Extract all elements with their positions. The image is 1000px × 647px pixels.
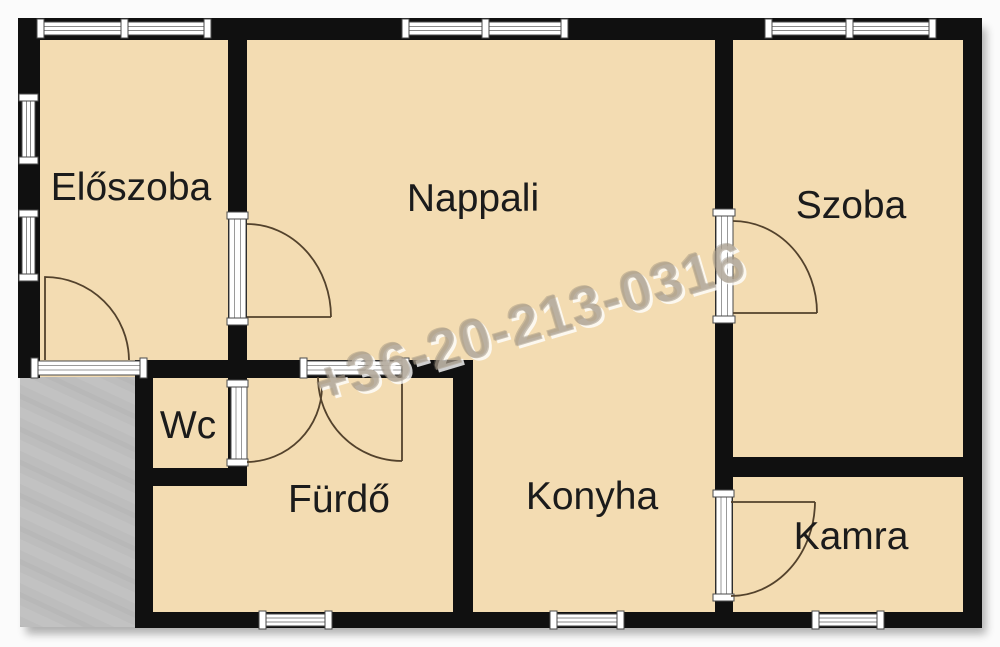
door-kamra	[713, 490, 734, 601]
door-eloszoba-nappali	[227, 212, 248, 325]
door-entrance	[31, 358, 147, 378]
label-szoba: Szoba	[796, 184, 907, 227]
floorplan-svg: Előszoba Nappali Szoba Wc Fürdő Konyha K…	[0, 0, 1000, 647]
wall-furdo-konyha	[453, 363, 473, 612]
window-nappali-top	[402, 19, 568, 38]
wall-wc-bottom	[150, 468, 247, 486]
label-nappali: Nappali	[407, 177, 539, 220]
wall-wc-left	[135, 360, 153, 628]
label-eloszoba: Előszoba	[51, 166, 212, 209]
terrace	[20, 377, 135, 627]
wall-left-upper	[18, 18, 40, 378]
wall-szoba-bottom	[715, 457, 963, 477]
window-kamra-bottom	[812, 611, 884, 629]
window-szoba-top	[765, 19, 936, 38]
label-konyha: Konyha	[526, 475, 659, 518]
label-kamra: Kamra	[794, 515, 909, 558]
label-furdo: Fürdő	[288, 478, 390, 521]
window-furdo-bottom	[259, 611, 332, 629]
window-eloszoba-left-lower	[19, 210, 38, 281]
window-eloszoba-top	[37, 19, 211, 38]
wall-right	[963, 18, 982, 628]
floorplan-image: Előszoba Nappali Szoba Wc Fürdő Konyha K…	[0, 0, 1000, 647]
label-wc: Wc	[160, 404, 216, 447]
window-eloszoba-left-upper	[19, 94, 38, 164]
window-konyha-bottom	[550, 611, 624, 629]
